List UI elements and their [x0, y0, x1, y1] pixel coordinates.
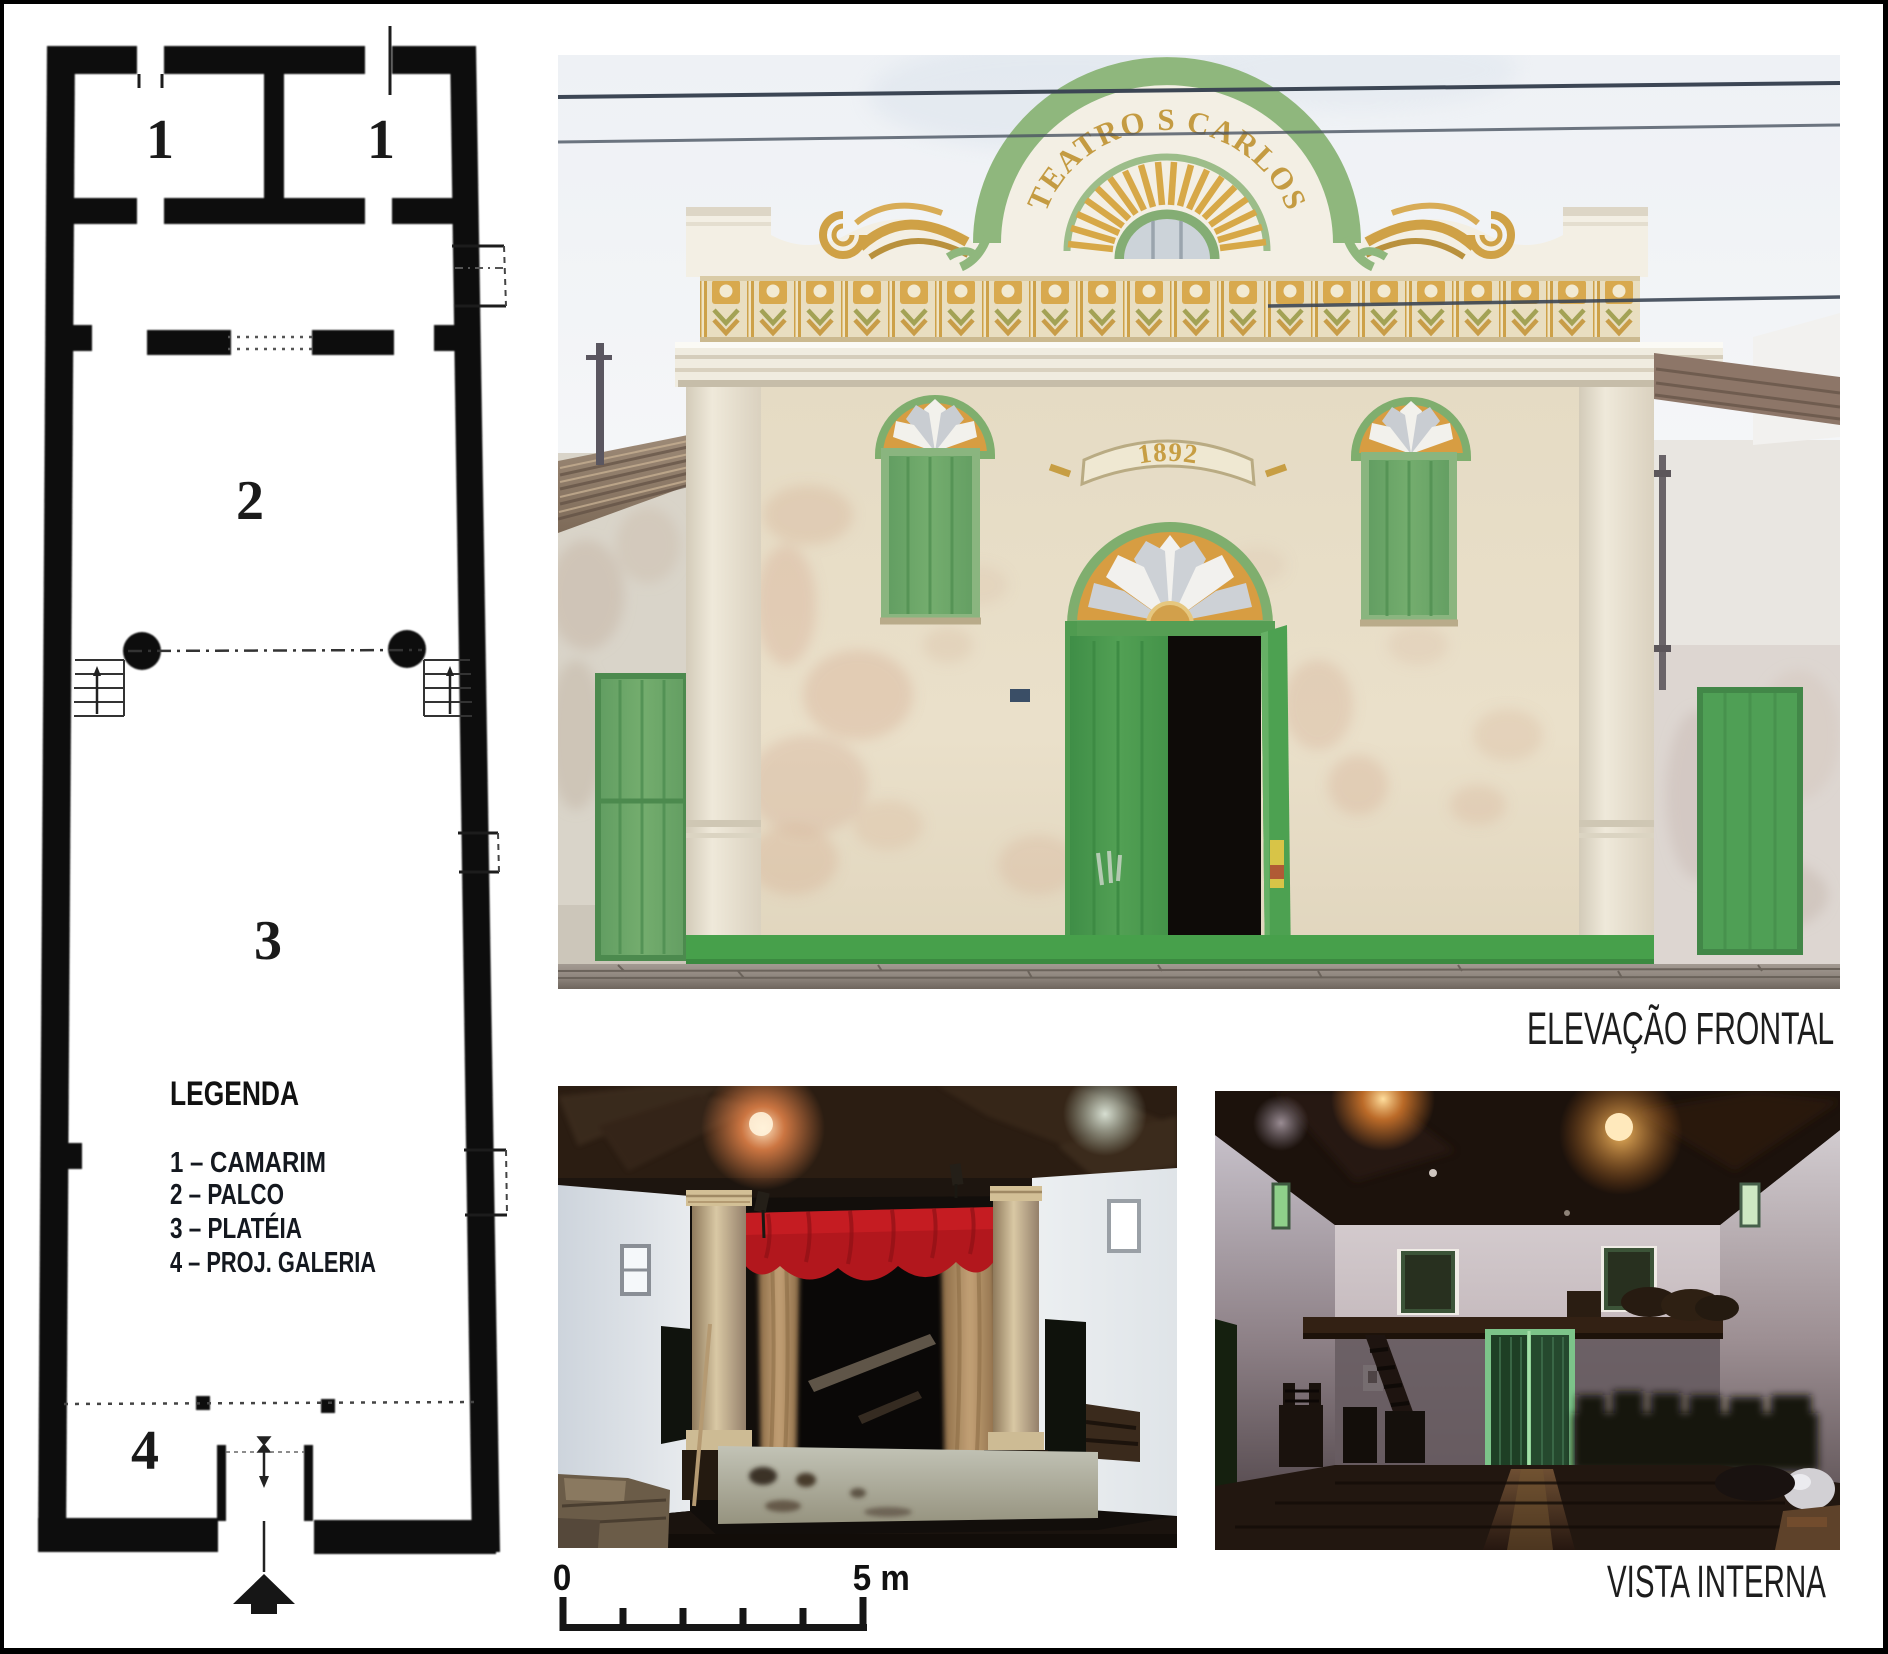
svg-text:LEGENDA: LEGENDA: [170, 1075, 299, 1113]
svg-text:1: 1: [146, 109, 174, 171]
svg-text:4: 4: [131, 1420, 159, 1482]
svg-text:1: 1: [367, 109, 395, 171]
svg-text:1 – CAMARIM: 1 – CAMARIM: [170, 1147, 326, 1179]
svg-text:3 – PLATÉIA: 3 – PLATÉIA: [170, 1213, 302, 1245]
svg-text:5 m: 5 m: [853, 1559, 910, 1599]
svg-text:4 – PROJ. GALERIA: 4 – PROJ. GALERIA: [170, 1247, 376, 1279]
svg-text:2 – PALCO: 2 – PALCO: [170, 1179, 284, 1211]
svg-text:0: 0: [553, 1559, 571, 1599]
svg-text:2: 2: [236, 470, 264, 532]
svg-text:3: 3: [254, 910, 282, 972]
